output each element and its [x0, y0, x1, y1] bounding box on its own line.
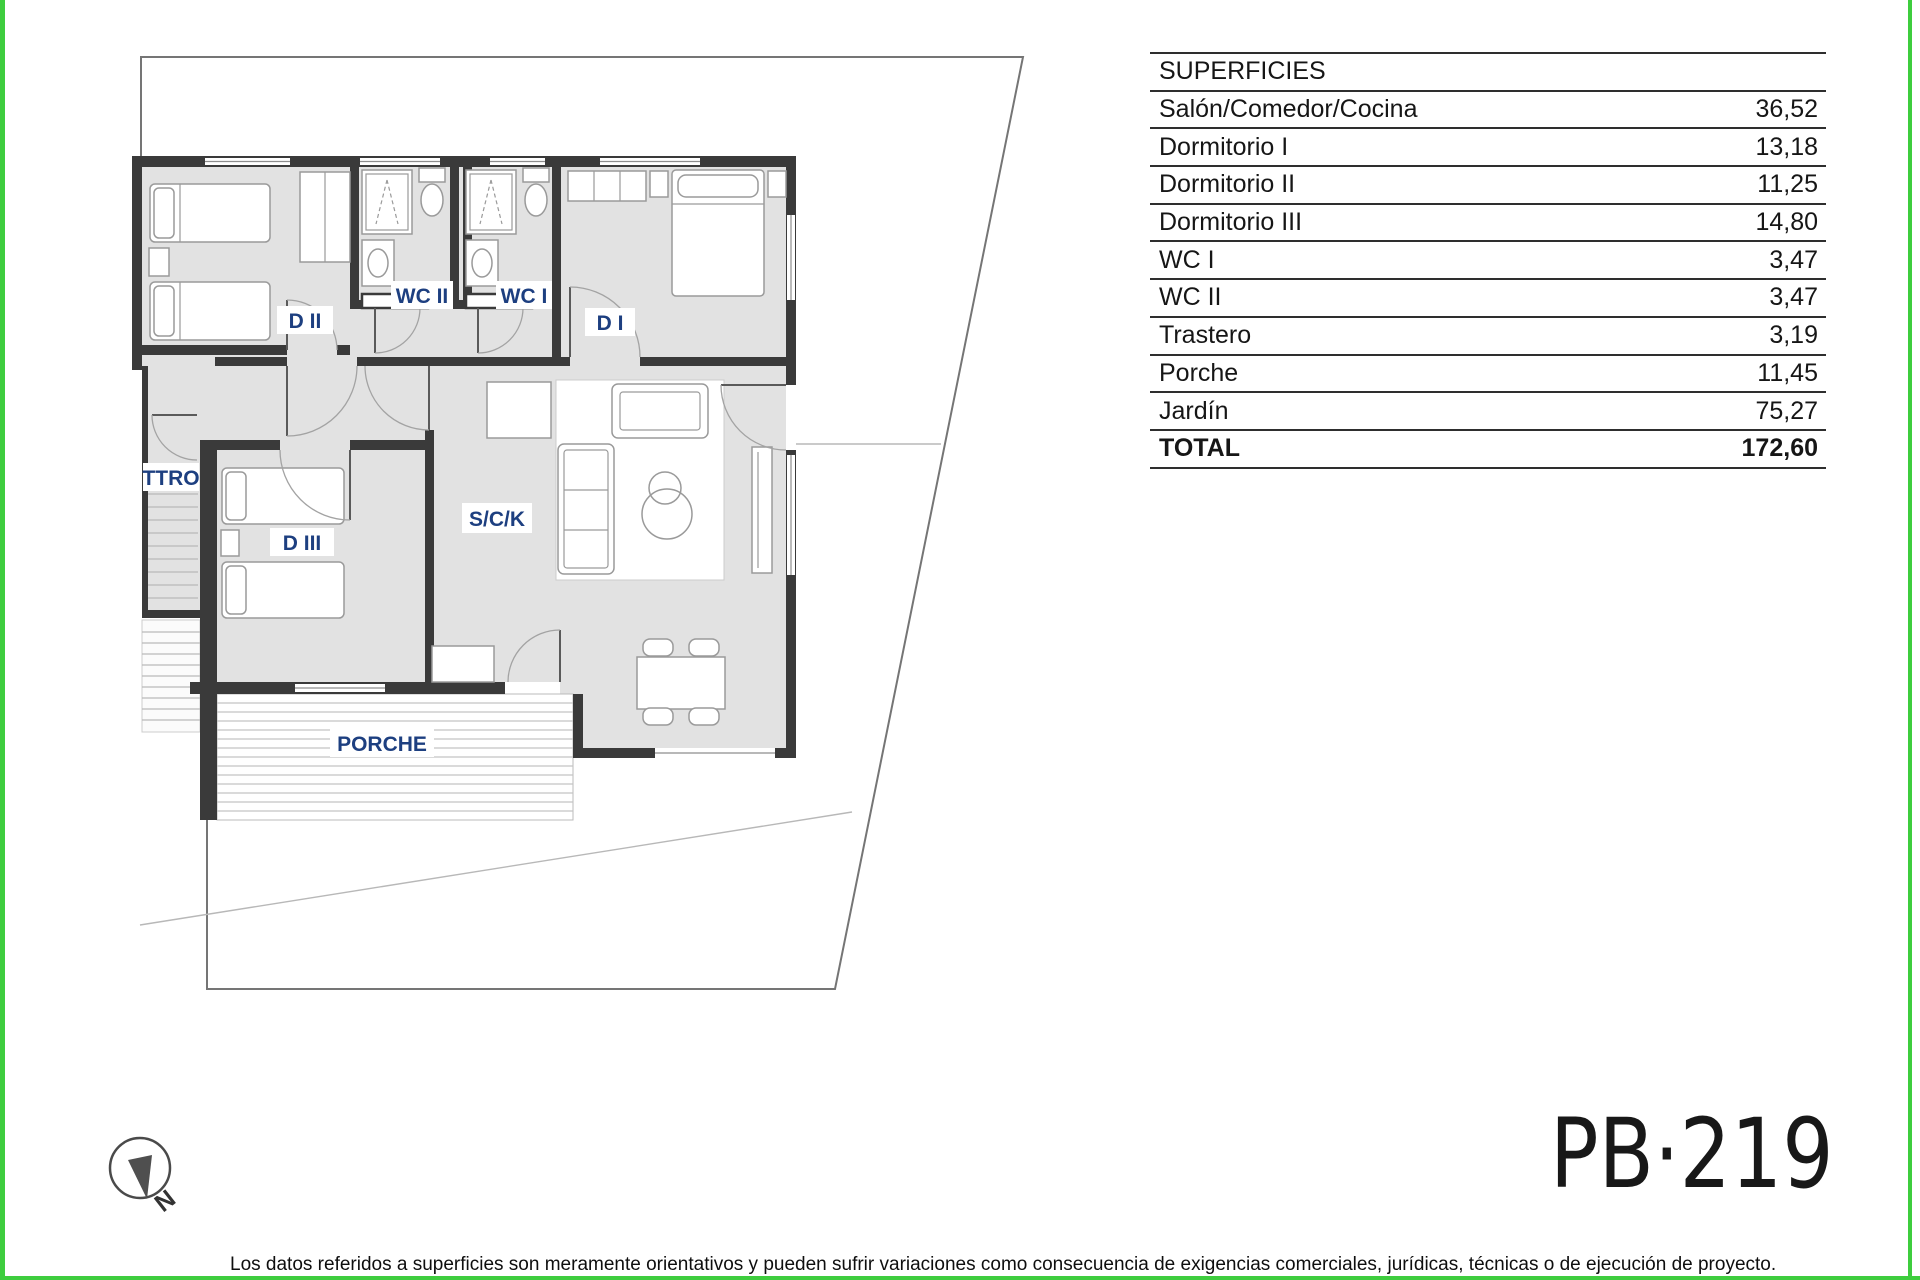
row-label: Dormitorio III — [1159, 208, 1302, 237]
row-value: 3,47 — [1769, 283, 1818, 312]
garden-terrain-line — [140, 812, 852, 925]
room-label-wc2: WC II — [396, 285, 449, 308]
row-label: WC II — [1159, 283, 1222, 312]
page-border-left — [0, 0, 5, 1280]
plan-sheet: D II WC II WC I D I TTRO D III S/C/K POR… — [0, 0, 1920, 1280]
row-label: Porche — [1159, 359, 1238, 388]
north-arrow: N — [110, 1138, 181, 1218]
room-label-ttro: TTRO — [142, 467, 199, 490]
surfaces-table: SUPERFICIES Salón/Comedor/Cocina 36,52 D… — [1150, 52, 1826, 469]
total-value: 172,60 — [1742, 434, 1818, 463]
compass-needle — [128, 1155, 152, 1199]
table-row: WC II 3,47 — [1150, 280, 1826, 318]
row-value: 3,47 — [1769, 246, 1818, 275]
row-value: 75,27 — [1755, 397, 1818, 426]
page-border-bottom — [0, 1276, 1920, 1280]
table-header-row: SUPERFICIES — [1150, 54, 1826, 92]
room-label-d2: D II — [289, 310, 322, 333]
table-row: WC I 3,47 — [1150, 242, 1826, 280]
north-letter: N — [149, 1185, 180, 1218]
plan-code: PB·219 — [1550, 1098, 1834, 1210]
page-border-right — [1908, 0, 1912, 1280]
row-value: 11,45 — [1757, 359, 1818, 388]
room-label-wc1: WC I — [501, 285, 548, 308]
row-label: Trastero — [1159, 321, 1251, 350]
row-label: Dormitorio I — [1159, 133, 1288, 162]
table-row: Jardín 75,27 — [1150, 393, 1826, 431]
row-label: Dormitorio II — [1159, 170, 1295, 199]
room-label-d1: D I — [597, 312, 624, 335]
table-row: Salón/Comedor/Cocina 36,52 — [1150, 92, 1826, 130]
row-value: 11,25 — [1757, 170, 1818, 199]
row-label: Jardín — [1159, 397, 1228, 426]
table-header: SUPERFICIES — [1159, 57, 1326, 86]
row-label: Salón/Comedor/Cocina — [1159, 95, 1417, 124]
row-value: 36,52 — [1755, 95, 1818, 124]
room-label-porche: PORCHE — [337, 733, 427, 756]
row-value: 13,18 — [1755, 133, 1818, 162]
row-label: WC I — [1159, 246, 1215, 275]
room-label-sck: S/C/K — [469, 508, 525, 531]
table-total-row: TOTAL 172,60 — [1150, 431, 1826, 469]
row-value: 14,80 — [1755, 208, 1818, 237]
room-label-d3: D III — [283, 532, 322, 555]
total-label: TOTAL — [1159, 434, 1240, 463]
table-row: Dormitorio III 14,80 — [1150, 205, 1826, 243]
table-row: Trastero 3,19 — [1150, 318, 1826, 356]
disclaimer-text: Los datos referidos a superficies son me… — [230, 1254, 1776, 1276]
table-row: Porche 11,45 — [1150, 356, 1826, 394]
table-row: Dormitorio II 11,25 — [1150, 167, 1826, 205]
table-row: Dormitorio I 13,18 — [1150, 129, 1826, 167]
row-value: 3,19 — [1769, 321, 1818, 350]
exterior-stairs — [142, 620, 200, 732]
